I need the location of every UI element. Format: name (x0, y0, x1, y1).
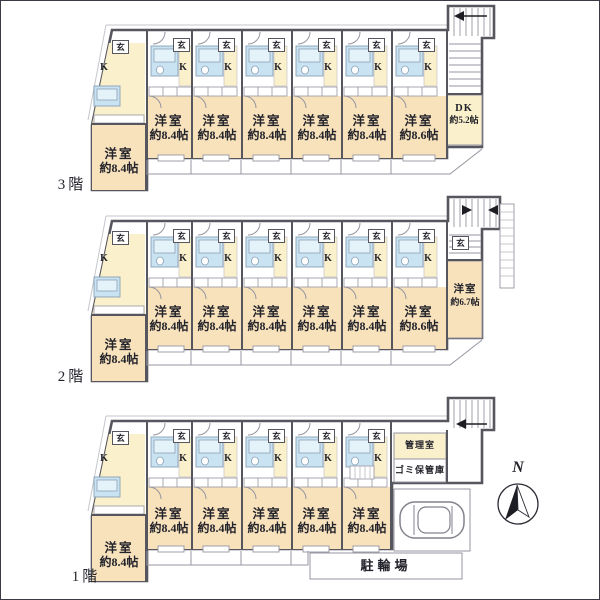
f1-unit5-entrance-label: 玄 (368, 429, 385, 443)
floor-3-label: 3階 (50, 177, 94, 194)
f2-unit3-kitchen-label: K (270, 253, 286, 265)
f1-corner-room-type: 洋室 (89, 541, 149, 555)
f3-unit2-entrance-label: 玄 (218, 38, 235, 52)
floor-2-label: 2階 (50, 369, 94, 386)
f3-unit6-entrance-label: 玄 (418, 38, 435, 52)
car-icon (400, 502, 464, 538)
f2-right-room-size: 約6.7帖 (441, 297, 489, 307)
f2-corner-entrance-label: 玄 (112, 231, 129, 245)
f3-corner-entrance-label: 玄 (112, 40, 129, 54)
f1-unit3-entrance-label: 玄 (268, 429, 285, 443)
f2-unit4-entrance-label: 玄 (318, 229, 335, 243)
f3-unit6-kitchen-label: K (420, 62, 436, 74)
f3-unit4-kitchen-label: K (320, 62, 336, 74)
f3-unit5-kitchen-label: K (370, 62, 386, 74)
manager-room-label: 管理室 (394, 440, 446, 450)
f3-dk-type: DK (444, 103, 484, 115)
side-walkway-2f (500, 204, 514, 288)
f1-unit5-type: 洋室 (337, 507, 397, 521)
f2-unit6-type: 洋室 (389, 305, 449, 319)
f1-unit1-entrance-label: 玄 (173, 429, 190, 443)
f2-unit6-size: 約8.6帖 (385, 320, 453, 334)
balcony-1f (147, 551, 308, 565)
f1-unit5-size: 約8.4帖 (333, 522, 401, 536)
floor-1-plan (88, 398, 538, 581)
f2-unit1-entrance-label: 玄 (173, 229, 190, 243)
f2-right-entrance-label: 玄 (452, 236, 469, 250)
f3-corner-room-type: 洋室 (89, 147, 149, 161)
f3-corner-room-size: 約8.4帖 (85, 162, 153, 176)
f2-unit5-type: 洋室 (337, 305, 397, 319)
f1-unit4-entrance-label: 玄 (318, 429, 335, 443)
compass-icon (498, 484, 538, 524)
f1-unit4-kitchen-label: K (320, 453, 336, 465)
f1-unit3-kitchen-label: K (270, 453, 286, 465)
f3-unit1-kitchen-label: K (175, 62, 191, 74)
f2-unit3-entrance-label: 玄 (268, 229, 285, 243)
f1-unit2-entrance-label: 玄 (218, 429, 235, 443)
f1-unit2-kitchen-label: K (220, 453, 236, 465)
f3-unit3-entrance-label: 玄 (268, 38, 285, 52)
f3-unit5-type: 洋室 (337, 114, 397, 128)
f1-unit5-kitchen-label: K (370, 453, 386, 465)
f3-unit5-entrance-label: 玄 (368, 38, 385, 52)
f2-unit6-entrance-label: 玄 (418, 229, 435, 243)
f2-unit4-kitchen-label: K (320, 253, 336, 265)
f1-unit1-kitchen-label: K (175, 453, 191, 465)
f1-corner-entrance-label: 玄 (112, 431, 129, 445)
f2-unit5-entrance-label: 玄 (368, 229, 385, 243)
f1-corner-kitchen-label: K (96, 453, 112, 465)
walkway-hatch-1f (350, 466, 374, 479)
f3-unit2-kitchen-label: K (220, 62, 236, 74)
f2-corner-kitchen-label: K (96, 253, 112, 265)
bicycle-parking-label: 駐輪場 (349, 559, 423, 574)
f3-unit6-type: 洋室 (389, 114, 449, 128)
f3-corner-kitchen-label: K (96, 62, 112, 74)
f2-unit5-kitchen-label: K (370, 253, 386, 265)
f3-unit1-entrance-label: 玄 (173, 38, 190, 52)
f1-corner-room-size: 約8.4帖 (85, 556, 153, 570)
f3-unit6-size: 約8.6帖 (385, 129, 453, 143)
f2-unit2-kitchen-label: K (220, 253, 236, 265)
f2-unit2-entrance-label: 玄 (218, 229, 235, 243)
f2-corner-room-size: 約8.4帖 (85, 353, 153, 367)
north-label: N (506, 459, 530, 477)
garbage-storage-label: ゴミ保管庫 (391, 465, 449, 475)
f2-unit6-kitchen-label: K (420, 253, 436, 265)
f3-unit4-entrance-label: 玄 (318, 38, 335, 52)
floorplan-page: 3階 2階 1階 洋室 約8.4帖 洋室 約8.4帖 洋室 約8.4帖 洋室 約… (0, 0, 600, 600)
f3-dk-size: 約5.2帖 (442, 115, 486, 125)
f2-corner-room-type: 洋室 (89, 338, 149, 352)
f2-unit1-kitchen-label: K (175, 253, 191, 265)
f2-right-room-type: 洋室 (445, 284, 485, 296)
f3-unit3-kitchen-label: K (270, 62, 286, 74)
floor-1-label: 1階 (64, 569, 108, 586)
